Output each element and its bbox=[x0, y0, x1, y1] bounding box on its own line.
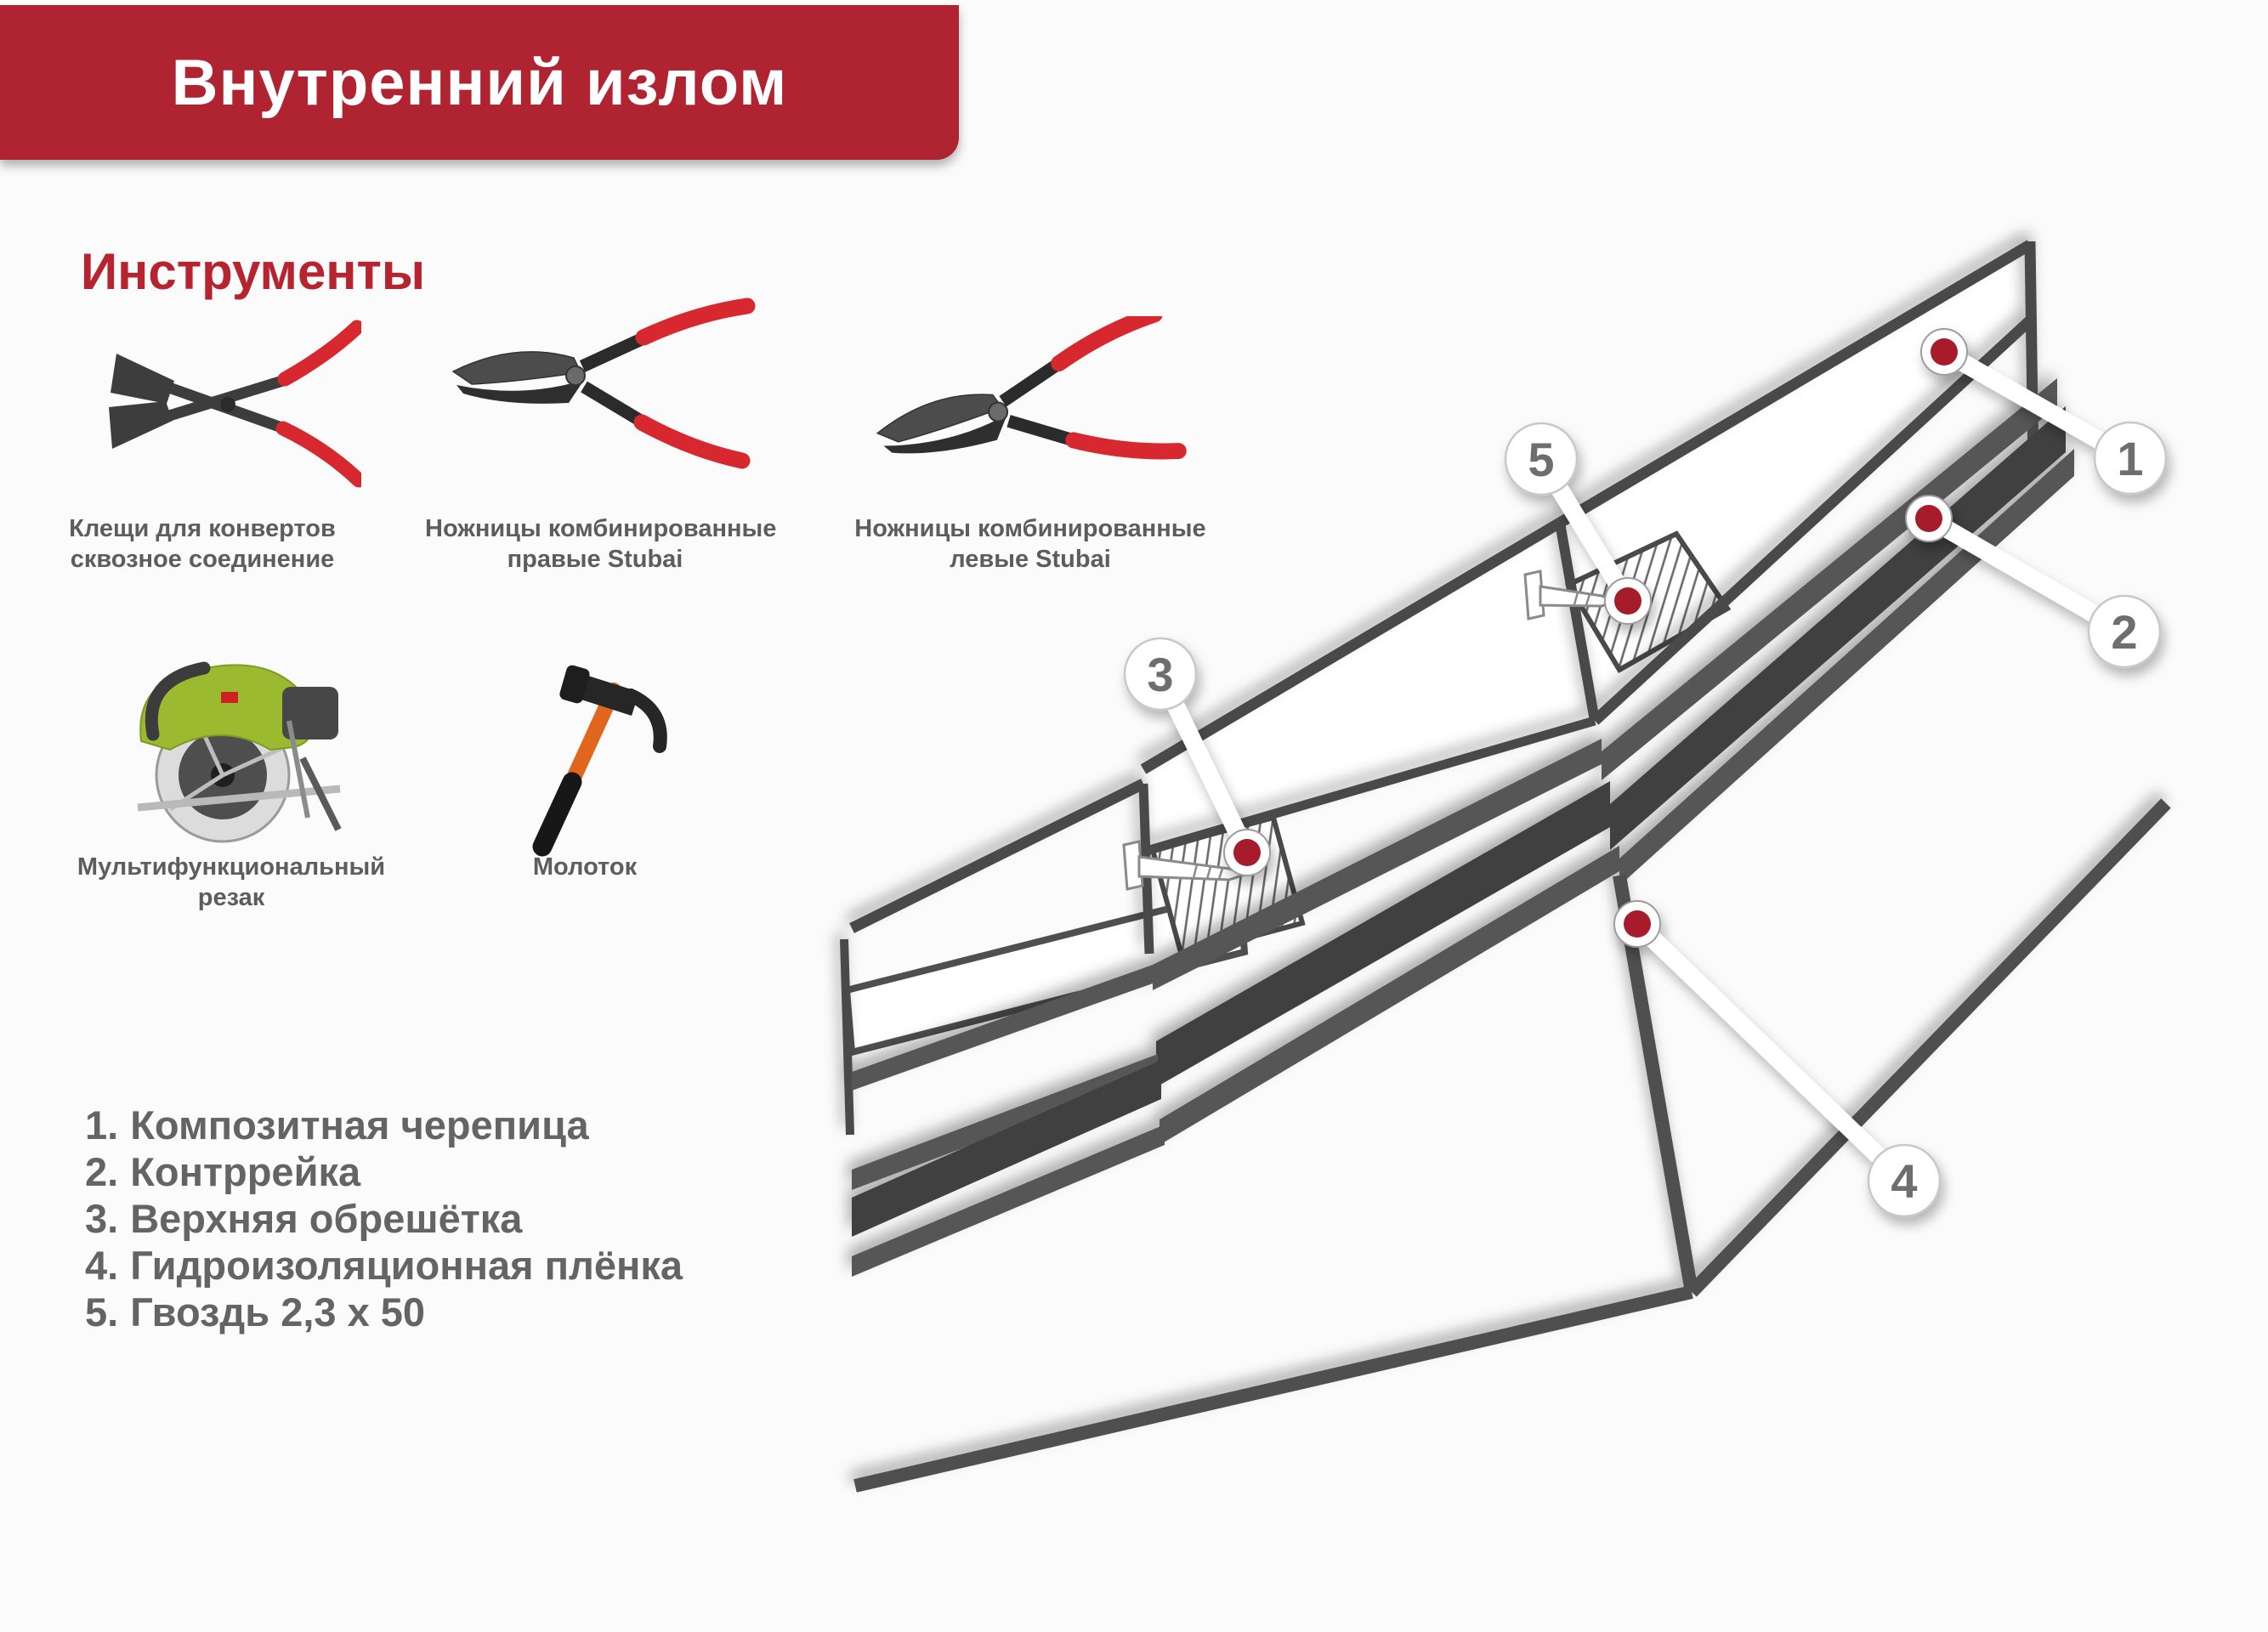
roof-structure-lines bbox=[844, 241, 2166, 1486]
callout-4: 4 bbox=[1614, 901, 1940, 1216]
bottom-left-edge bbox=[855, 1292, 1692, 1486]
callout-number: 2 bbox=[2111, 605, 2137, 659]
callout-number: 5 bbox=[1528, 433, 1554, 486]
lower-slope-top-edge bbox=[852, 784, 1143, 928]
red-dot bbox=[1624, 910, 1651, 938]
callout-number: 4 bbox=[1891, 1154, 1917, 1208]
left-band-2 bbox=[852, 1054, 1158, 1190]
red-dot bbox=[1931, 338, 1958, 365]
callout-number: 1 bbox=[2117, 432, 2143, 485]
red-dot bbox=[1233, 839, 1261, 866]
roof-break-diagram: 1 2 3 4 bbox=[0, 0, 2268, 1632]
left-cut-edge bbox=[844, 939, 850, 1135]
red-dot bbox=[1915, 505, 1942, 532]
gable-edge bbox=[2030, 241, 2033, 466]
callout-number: 3 bbox=[1147, 648, 1173, 701]
red-dot bbox=[1614, 587, 1641, 615]
